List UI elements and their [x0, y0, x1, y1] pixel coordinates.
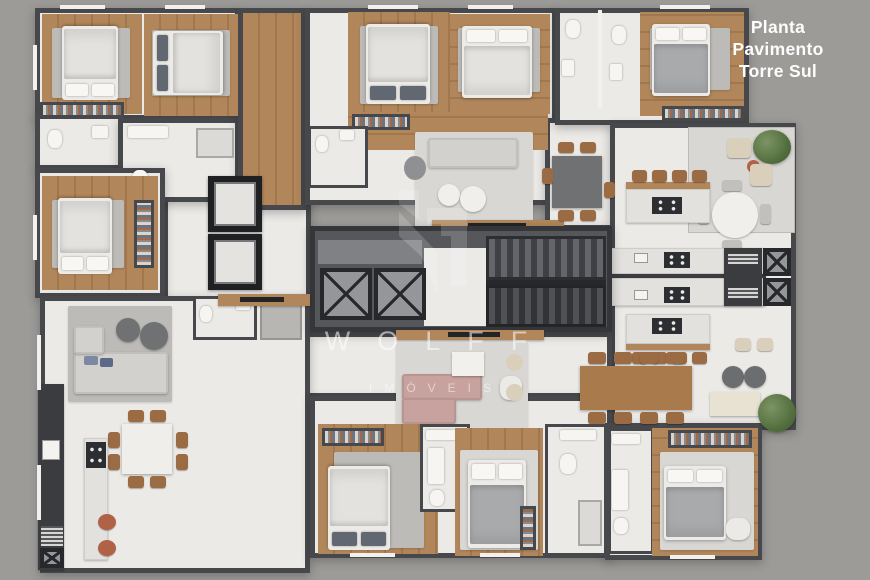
chair [558, 210, 574, 221]
oven [728, 254, 758, 264]
wardrobe-8 [520, 506, 536, 550]
wardrobe-1 [40, 102, 124, 118]
window [60, 5, 105, 9]
bar-stool [692, 352, 707, 364]
pillow [100, 358, 113, 367]
sink [42, 440, 60, 460]
bedroom-6-bed [652, 24, 710, 96]
shower [196, 128, 234, 158]
vanity [612, 434, 640, 444]
sink [634, 253, 648, 263]
cooktop [86, 442, 106, 468]
wardrobe-7 [322, 428, 384, 446]
chair [640, 412, 658, 424]
living-tm-armchair [404, 156, 426, 180]
window [37, 465, 41, 520]
plan-title-line2: Pavimento [708, 38, 848, 60]
tv [448, 332, 500, 337]
window [37, 335, 41, 390]
window [368, 5, 418, 9]
bedroom-1-bed [62, 26, 118, 100]
island-wood-edge [626, 344, 710, 350]
island-wood-edge [626, 182, 710, 189]
living-bl-sofa-chaise [74, 326, 104, 354]
bedroom-4-bed [366, 24, 430, 104]
elevator-x-1 [320, 268, 372, 320]
chair [108, 454, 120, 470]
bathtub [612, 470, 628, 510]
bedroom-3-bed [58, 198, 112, 274]
toilet [614, 518, 628, 534]
wardrobe-6 [662, 106, 744, 121]
chair [558, 142, 574, 153]
pillow [84, 356, 98, 365]
plan-title-line3: Torre Sul [708, 60, 848, 82]
chair [722, 180, 742, 191]
bench [710, 392, 760, 416]
plan-title: Planta Pavimento Torre Sul [708, 16, 848, 82]
chair [176, 454, 188, 470]
chair [580, 142, 596, 153]
dining-table-wood [580, 366, 692, 410]
service-shaft-x [763, 278, 791, 306]
bathroom-topmiddle [308, 126, 368, 188]
sink [634, 290, 648, 300]
accent-chair [506, 354, 523, 371]
storage-closet [260, 300, 302, 340]
balcony-stool [757, 338, 773, 351]
chair [614, 412, 632, 424]
elevator-lobby [424, 248, 486, 326]
tv [240, 297, 284, 302]
window [660, 5, 710, 9]
toilet [316, 136, 328, 152]
plant [758, 394, 796, 432]
bedroom-7-bed [328, 466, 390, 550]
bedroom-5-bed [462, 26, 532, 98]
elevator-shaft-2 [208, 234, 262, 290]
service-shaft-x [40, 548, 64, 568]
coffee-table [460, 186, 486, 212]
side-table [452, 352, 484, 376]
cooktop [664, 287, 690, 303]
toilet [430, 490, 444, 506]
living-tm-sofa [428, 138, 518, 168]
oven [728, 288, 758, 298]
plan-title-line1: Planta [708, 16, 848, 38]
sink [562, 60, 574, 76]
elevator-x-2 [374, 268, 426, 320]
coffee-table [140, 322, 168, 350]
pouf [722, 366, 744, 388]
chair [588, 352, 606, 364]
toilet [612, 26, 626, 44]
bar-stool [652, 170, 667, 182]
fridge [41, 526, 63, 546]
pink-sofa [402, 374, 482, 400]
chair [128, 410, 144, 422]
chair [542, 168, 553, 184]
chair [176, 432, 188, 448]
chair [604, 182, 615, 198]
elevator-shaft-1 [208, 176, 262, 232]
chair [588, 412, 606, 424]
accent-chair [506, 384, 523, 401]
toilet [560, 454, 576, 474]
window [468, 5, 513, 9]
bathtub [428, 448, 444, 484]
window [165, 5, 205, 9]
toilet [48, 130, 62, 148]
wardrobe-9 [668, 430, 752, 448]
chair [128, 476, 144, 488]
core-corridor [318, 240, 422, 264]
chair [614, 352, 632, 364]
window [350, 553, 395, 557]
bar-stool [672, 170, 687, 182]
coffee-table [116, 318, 140, 342]
terracotta-stool [98, 540, 116, 556]
bath-partition [598, 10, 602, 108]
pouf [744, 366, 766, 388]
cooktop [664, 252, 690, 268]
sink [92, 126, 108, 138]
toilet [566, 20, 580, 38]
sink [610, 64, 622, 80]
chair [640, 352, 658, 364]
round-dining-table [712, 192, 758, 238]
pink-sofa-chaise [402, 398, 456, 424]
coffee-table [438, 184, 460, 206]
sink [340, 130, 354, 140]
window [480, 553, 520, 557]
bedroom-2-bed [153, 31, 223, 95]
chair [666, 412, 684, 424]
window [33, 215, 37, 260]
bar-stool [692, 170, 707, 182]
bedroom-9-bed [664, 466, 726, 540]
terracotta-stool [98, 514, 116, 530]
bar-stool [632, 170, 647, 182]
window [33, 45, 37, 90]
wardrobe-3 [134, 200, 154, 268]
chair [760, 204, 771, 224]
dining-table-white [122, 424, 172, 474]
cooktop [652, 318, 682, 334]
stairs-lower-flight [486, 285, 606, 327]
floorplan-render: WOLFF IMÓVEIS Planta Pavimento Torre Sul [0, 0, 870, 580]
vanity [128, 126, 168, 138]
toilet [200, 306, 212, 322]
cooktop [652, 197, 682, 214]
service-shaft-x [763, 248, 791, 276]
chair [108, 432, 120, 448]
window [670, 555, 715, 559]
vanity [426, 430, 456, 440]
stairs-upper-flight [486, 236, 606, 280]
vanity [560, 430, 596, 440]
plant [753, 130, 791, 164]
balcony-stool [735, 338, 751, 351]
chair [666, 352, 684, 364]
chair [150, 410, 166, 422]
wicker-chair [727, 138, 751, 158]
chair [150, 476, 166, 488]
bedroom-8-bed [468, 460, 526, 548]
dining-table-stone [552, 156, 602, 208]
wicker-chair [750, 164, 772, 186]
lounge-chair [726, 518, 750, 540]
chair [580, 210, 596, 221]
shower [578, 500, 602, 546]
